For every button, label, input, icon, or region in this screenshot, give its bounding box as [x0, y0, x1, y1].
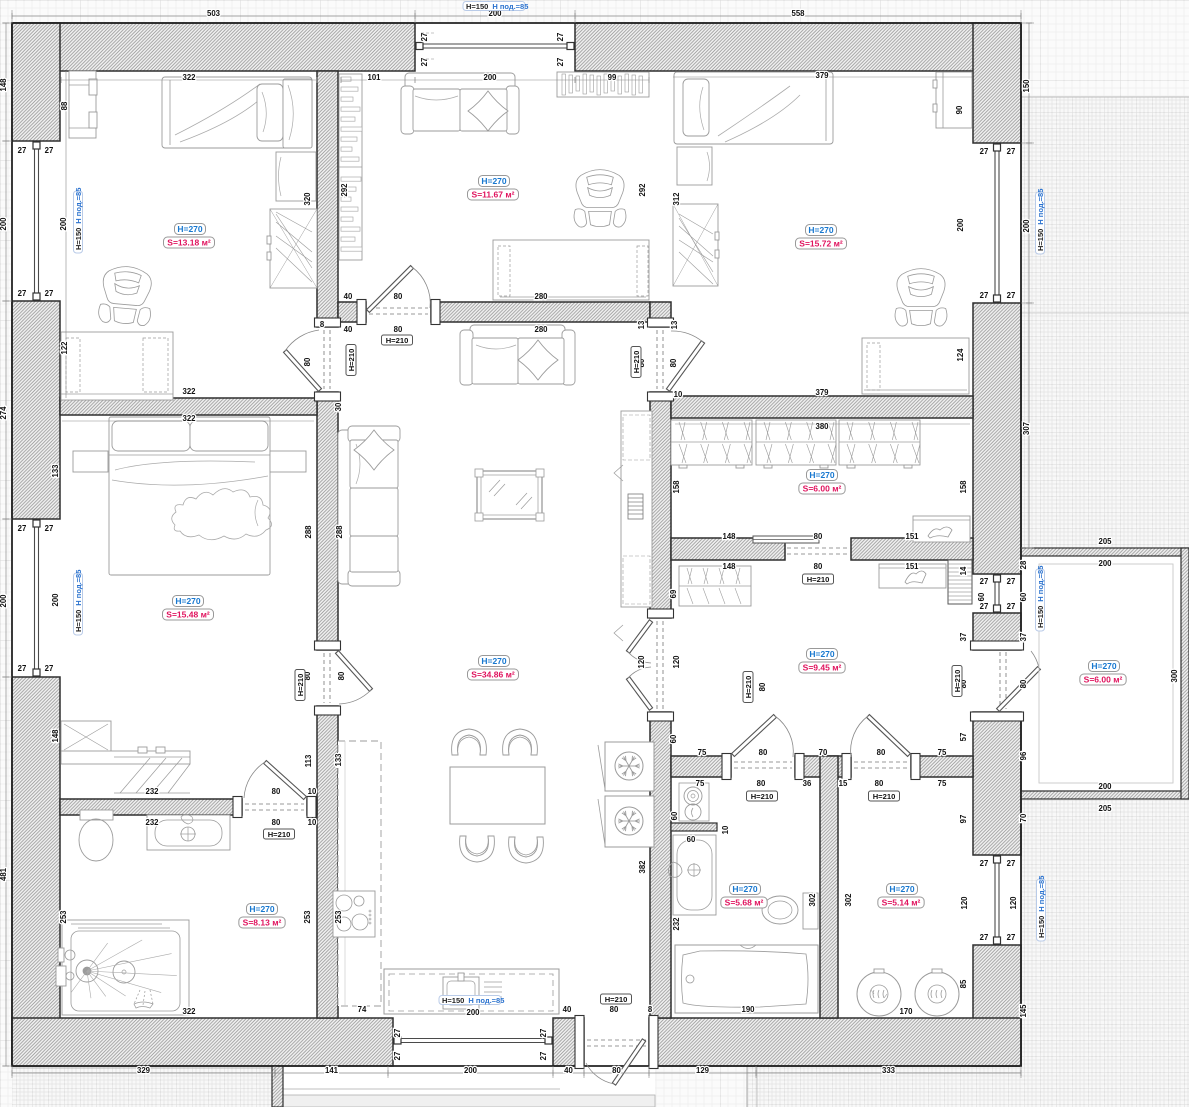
svg-text:302: 302 [844, 893, 853, 907]
svg-text:96: 96 [1019, 751, 1028, 760]
svg-text:322: 322 [182, 387, 196, 396]
svg-text:70: 70 [819, 748, 828, 757]
svg-text:274: 274 [0, 406, 8, 420]
svg-text:40: 40 [344, 292, 353, 301]
svg-text:H=150Н под.=85: H=150Н под.=85 [1036, 189, 1045, 251]
svg-text:S=15.72 м²: S=15.72 м² [799, 239, 843, 249]
svg-text:27: 27 [393, 1029, 402, 1038]
svg-text:27: 27 [420, 33, 429, 42]
svg-text:37: 37 [959, 633, 968, 642]
svg-text:S=9.45 м²: S=9.45 м² [803, 663, 842, 673]
svg-text:H=270: H=270 [809, 649, 835, 659]
svg-text:379: 379 [815, 388, 829, 397]
svg-text:205: 205 [1098, 804, 1112, 813]
svg-text:27: 27 [1007, 291, 1016, 300]
svg-text:60: 60 [687, 835, 696, 844]
svg-text:27: 27 [1007, 577, 1016, 586]
svg-text:27: 27 [45, 524, 54, 533]
svg-text:382: 382 [638, 860, 647, 874]
svg-text:H=150Н под.=85: H=150Н под.=85 [442, 996, 504, 1005]
svg-text:190: 190 [741, 1005, 755, 1014]
svg-text:H=270: H=270 [1091, 661, 1117, 671]
svg-text:75: 75 [698, 748, 707, 757]
svg-text:13: 13 [670, 320, 679, 329]
svg-text:74: 74 [358, 1005, 367, 1014]
svg-text:200: 200 [464, 1066, 478, 1075]
svg-text:H=210: H=210 [605, 995, 628, 1004]
svg-text:379: 379 [815, 71, 829, 80]
svg-text:253: 253 [334, 910, 343, 924]
svg-text:80: 80 [610, 1005, 619, 1014]
svg-text:10: 10 [721, 825, 730, 834]
svg-text:80: 80 [758, 682, 767, 691]
svg-text:158: 158 [959, 480, 968, 494]
svg-text:27: 27 [45, 146, 54, 155]
svg-text:307: 307 [1022, 422, 1031, 435]
svg-text:27: 27 [980, 147, 989, 156]
svg-text:151: 151 [905, 532, 919, 541]
svg-text:H=210: H=210 [807, 575, 830, 584]
svg-text:H=210: H=210 [347, 349, 356, 372]
svg-text:148: 148 [722, 532, 736, 541]
svg-text:90: 90 [955, 105, 964, 114]
svg-text:145: 145 [1019, 1004, 1028, 1018]
svg-text:10: 10 [674, 390, 683, 399]
svg-text:200: 200 [1098, 559, 1112, 568]
svg-text:80: 80 [877, 748, 886, 757]
svg-text:200: 200 [0, 217, 8, 231]
svg-text:122: 122 [60, 341, 69, 355]
svg-text:97: 97 [959, 815, 968, 824]
svg-text:60: 60 [977, 592, 986, 601]
svg-text:27: 27 [45, 664, 54, 673]
svg-text:75: 75 [696, 779, 705, 788]
svg-text:558: 558 [791, 9, 805, 18]
svg-text:69: 69 [669, 589, 678, 598]
svg-text:13: 13 [637, 320, 646, 329]
svg-text:80: 80 [272, 787, 281, 796]
svg-text:H=270: H=270 [177, 224, 203, 234]
svg-text:S=5.14 м²: S=5.14 м² [882, 898, 921, 908]
svg-text:80: 80 [1019, 679, 1028, 688]
svg-text:27: 27 [18, 146, 27, 155]
svg-text:H=210: H=210 [632, 351, 641, 374]
svg-text:H=210: H=210 [296, 674, 305, 697]
svg-text:253: 253 [59, 910, 68, 924]
svg-text:S=15.48 м²: S=15.48 м² [166, 610, 210, 620]
svg-text:S=34.86 м²: S=34.86 м² [471, 670, 515, 680]
svg-text:H=270: H=270 [249, 904, 275, 914]
svg-text:302: 302 [808, 893, 817, 907]
svg-text:27: 27 [980, 933, 989, 942]
svg-text:H=270: H=270 [481, 656, 507, 666]
svg-text:S=13.18 м²: S=13.18 м² [167, 238, 211, 248]
svg-text:329: 329 [137, 1066, 151, 1075]
svg-text:15: 15 [839, 779, 848, 788]
svg-text:40: 40 [344, 325, 353, 334]
svg-text:200: 200 [0, 594, 8, 608]
svg-text:200: 200 [59, 217, 68, 231]
svg-text:80: 80 [612, 1066, 621, 1075]
svg-text:503: 503 [207, 9, 221, 18]
svg-text:H=210: H=210 [751, 792, 774, 801]
svg-text:H=270: H=270 [481, 176, 507, 186]
svg-text:S=6.00 м²: S=6.00 м² [1084, 675, 1123, 685]
svg-text:40: 40 [564, 1066, 573, 1075]
svg-text:205: 205 [1098, 537, 1112, 546]
svg-text:80: 80 [875, 779, 884, 788]
svg-text:88: 88 [60, 101, 69, 110]
svg-text:80: 80 [814, 532, 823, 541]
svg-text:27: 27 [393, 1052, 402, 1061]
svg-text:288: 288 [304, 525, 313, 539]
svg-text:113: 113 [304, 754, 313, 767]
svg-text:322: 322 [182, 414, 196, 423]
svg-text:292: 292 [638, 183, 647, 197]
svg-text:101: 101 [367, 73, 381, 82]
svg-text:232: 232 [145, 787, 159, 796]
svg-text:S=8.13 м²: S=8.13 м² [243, 918, 282, 928]
svg-text:S=6.00 м²: S=6.00 м² [803, 484, 842, 494]
svg-text:380: 380 [815, 422, 829, 431]
svg-text:333: 333 [882, 1066, 896, 1075]
svg-text:27: 27 [539, 1029, 548, 1038]
svg-text:232: 232 [672, 917, 681, 931]
svg-text:H=210: H=210 [386, 336, 409, 345]
svg-text:133: 133 [334, 753, 343, 767]
svg-text:80: 80 [272, 818, 281, 827]
svg-text:148: 148 [0, 78, 8, 92]
svg-text:80: 80 [814, 562, 823, 571]
svg-text:80: 80 [337, 671, 346, 680]
svg-text:H=270: H=270 [732, 884, 758, 894]
svg-text:10: 10 [308, 787, 317, 796]
svg-text:H=270: H=270 [808, 225, 834, 235]
svg-text:232: 232 [145, 818, 159, 827]
svg-text:80: 80 [757, 779, 766, 788]
svg-text:H=270: H=270 [889, 884, 915, 894]
svg-text:27: 27 [556, 33, 565, 42]
svg-text:57: 57 [959, 733, 968, 742]
svg-text:27: 27 [1007, 933, 1016, 942]
svg-text:H=150Н под.=85: H=150Н под.=85 [74, 570, 83, 632]
svg-text:8: 8 [320, 320, 325, 329]
svg-text:H=210: H=210 [268, 830, 291, 839]
svg-text:300: 300 [1170, 669, 1179, 683]
svg-text:S=11.67 м²: S=11.67 м² [472, 190, 515, 200]
svg-text:200: 200 [51, 593, 60, 607]
svg-text:27: 27 [18, 664, 27, 673]
svg-text:36: 36 [803, 779, 812, 788]
svg-text:280: 280 [534, 292, 548, 301]
svg-text:288: 288 [335, 525, 344, 539]
svg-text:H=270: H=270 [809, 470, 835, 480]
svg-text:H=270: H=270 [175, 596, 201, 606]
svg-text:148: 148 [722, 562, 736, 571]
svg-text:27: 27 [1007, 147, 1016, 156]
svg-text:27: 27 [18, 524, 27, 533]
svg-text:40: 40 [563, 1005, 572, 1014]
svg-text:200: 200 [1022, 219, 1031, 233]
svg-text:481: 481 [0, 867, 8, 881]
svg-text:80: 80 [669, 358, 678, 367]
svg-text:141: 141 [325, 1066, 339, 1075]
svg-text:200: 200 [1098, 782, 1112, 791]
svg-text:120: 120 [1009, 896, 1018, 910]
svg-text:200: 200 [466, 1008, 480, 1017]
svg-text:320: 320 [303, 192, 312, 206]
svg-text:27: 27 [1007, 859, 1016, 868]
svg-text:S=5.68 м²: S=5.68 м² [725, 898, 764, 908]
svg-text:30: 30 [334, 402, 343, 411]
svg-text:148: 148 [51, 729, 60, 743]
svg-text:170: 170 [899, 1007, 913, 1016]
svg-text:27: 27 [556, 58, 565, 67]
svg-text:H=210: H=210 [744, 676, 753, 699]
svg-text:H=150Н под.=85: H=150Н под.=85 [74, 188, 83, 250]
svg-text:280: 280 [534, 325, 548, 334]
svg-text:27: 27 [980, 291, 989, 300]
svg-text:253: 253 [303, 910, 312, 924]
svg-text:60: 60 [1019, 592, 1028, 601]
svg-text:85: 85 [959, 979, 968, 988]
svg-text:150: 150 [1022, 79, 1031, 93]
svg-text:H=150Н под.=85: H=150Н под.=85 [466, 2, 528, 11]
svg-text:120: 120 [960, 896, 969, 910]
svg-text:120: 120 [672, 655, 681, 669]
svg-text:27: 27 [539, 1052, 548, 1061]
svg-text:60: 60 [669, 734, 678, 743]
svg-text:75: 75 [938, 748, 947, 757]
svg-text:28: 28 [1019, 560, 1028, 569]
svg-text:27: 27 [980, 577, 989, 586]
svg-text:27: 27 [980, 602, 989, 611]
svg-text:133: 133 [51, 464, 60, 478]
svg-text:80: 80 [394, 292, 403, 301]
svg-text:27: 27 [1007, 602, 1016, 611]
svg-text:200: 200 [483, 73, 497, 82]
svg-text:80: 80 [394, 325, 403, 334]
svg-text:200: 200 [956, 218, 965, 232]
svg-text:27: 27 [45, 289, 54, 298]
svg-text:10: 10 [308, 818, 317, 827]
svg-text:312: 312 [672, 192, 681, 206]
svg-text:70: 70 [1019, 813, 1028, 822]
svg-text:99: 99 [608, 73, 617, 82]
svg-text:151: 151 [905, 562, 919, 571]
svg-text:27: 27 [18, 289, 27, 298]
svg-text:129: 129 [696, 1066, 710, 1075]
svg-text:37: 37 [1019, 633, 1028, 642]
svg-text:8: 8 [648, 1005, 653, 1014]
svg-text:27: 27 [980, 859, 989, 868]
svg-text:322: 322 [182, 1007, 196, 1016]
svg-text:158: 158 [672, 480, 681, 494]
svg-text:H=150Н под.=85: H=150Н под.=85 [1036, 566, 1045, 628]
svg-text:H=210: H=210 [873, 792, 896, 801]
svg-text:80: 80 [303, 357, 312, 366]
svg-text:H=150Н под.=85: H=150Н под.=85 [1037, 876, 1046, 938]
svg-text:60: 60 [670, 811, 679, 820]
svg-text:14: 14 [959, 566, 968, 575]
svg-text:124: 124 [956, 348, 965, 362]
svg-text:322: 322 [182, 73, 196, 82]
svg-text:H=210: H=210 [953, 670, 962, 693]
svg-text:80: 80 [759, 748, 768, 757]
svg-text:120: 120 [637, 655, 646, 669]
svg-text:292: 292 [340, 183, 349, 197]
svg-text:75: 75 [938, 779, 947, 788]
